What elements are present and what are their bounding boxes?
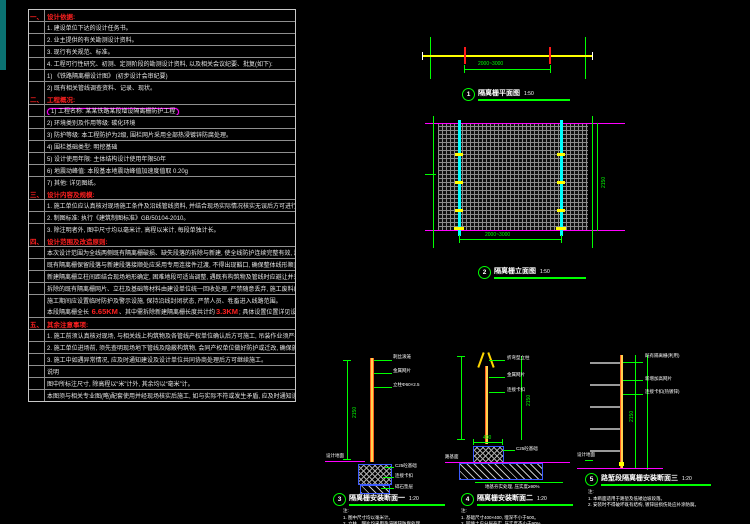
label-ground-treatment: 地基夯实处理, 压实度≥90% — [485, 484, 539, 489]
section-rows: 本次设计范围为全线两侧既有隔离栅破损、缺失段落的拆除与新建, 使全线防护连续完整… — [29, 247, 295, 306]
notes-row: 图中所标注尺寸, 除高程以“米”计外, 其余均以“毫米”计。 — [29, 378, 295, 390]
post-base — [454, 227, 464, 230]
extension-line — [647, 355, 648, 470]
notes-row: 施工期间应设置临时防护及警示设施, 保持沿线封闭状态, 严禁人员、牲畜进入线路范… — [29, 295, 295, 306]
notes-row: 4) 围栏基础类型: 明挖基础 — [29, 141, 295, 153]
section-rows: 1. 施工前须认真核对现场, 与相关线上构筑物及各管线产权单位确认后方可施工, … — [29, 330, 295, 401]
dim-post-height: 2150 — [629, 411, 635, 422]
rail — [590, 384, 620, 386]
rail — [590, 428, 620, 430]
label-existing-fence: 既有隔离栅(利用) — [645, 353, 707, 358]
label-new-mesh: 新增加高网片 — [645, 376, 707, 381]
plan-view: 2000~3000 — [420, 33, 602, 85]
drawing-title: 路堑段隔离栅安装断面三 — [601, 473, 678, 483]
post-section — [485, 366, 488, 444]
drawing-scale: 1:20 — [409, 496, 419, 502]
notes-row: 4. 工程可行性研究、初测、定测阶段的勘测设计资料, 以及相关会议纪要、批复(如… — [29, 58, 295, 70]
notes-row: 1) 《铁路隔离栅设计图》 (初步设计会审纪要) — [29, 70, 295, 82]
detail-number-badge: 5 — [585, 473, 598, 486]
section-title: 设计内容及规模: — [45, 189, 295, 199]
section-c-notes: 注:1. 本断面适用于路堑及低矮边坡段落。2. 安装时不得破坏既有结构, 镀锌层… — [588, 489, 713, 509]
fence-line-plan — [423, 55, 592, 57]
extension-line — [430, 37, 431, 79]
label-post-spec: 立柱Φ60×2.5 — [393, 382, 419, 387]
leader-line — [623, 380, 643, 381]
label-ground: 设计地面 — [326, 453, 344, 458]
drawing-title: 隔离栅平面图 — [478, 88, 520, 98]
notes-row: 3. 除注明者外, 图中尺寸均以毫米计, 高程以米计, 每段单独计长。 — [29, 224, 295, 235]
section-rows: 1. 建设单位下达的设计任务书。2. 业主提供的有关勘测设计资料。3. 现行有关… — [29, 22, 295, 93]
height-dimension-line — [521, 356, 522, 440]
ground-line — [425, 230, 625, 231]
ground-line — [577, 468, 663, 469]
post-arm — [477, 352, 484, 368]
leader-line — [623, 362, 643, 363]
cad-sheet: 一、 设计依据: 1. 建设单位下达的设计任务书。2. 业主提供的有关勘测设计资… — [0, 0, 750, 524]
fence-post — [458, 120, 461, 236]
sheet-edge-strip — [0, 0, 6, 70]
detail-number-badge: 3 — [333, 493, 346, 506]
notes-row: 1) 工程名称: 某某铁路某段增设隔离栅防护工程 — [29, 105, 295, 117]
height-dimension-line — [347, 360, 348, 460]
mid-tick — [425, 174, 436, 175]
label-clip: 连接卡扣 — [507, 387, 525, 392]
km-value-rebuild: 3.3KM — [215, 307, 239, 316]
notes-row: 5) 设计使用年限: 主体结构设计使用年限50年 — [29, 153, 295, 165]
label-subgrade: 路基面 — [445, 454, 459, 459]
leader-line — [489, 377, 505, 378]
notes-row: 2. 业主提供的有关勘测设计资料。 — [29, 34, 295, 46]
post-mark — [464, 47, 466, 64]
height-dimension-line — [635, 355, 636, 468]
section-header: 四、 设计范围及改造原则: — [29, 235, 295, 247]
ground-mark — [585, 460, 593, 461]
notes-row: 本次设计范围为全线两侧既有隔离栅破损、缺失段落的拆除与新建, 使全线防护连续完整… — [29, 247, 295, 259]
leader-line — [503, 450, 515, 451]
section-number: 五、 — [29, 318, 45, 329]
notes-row: 6) 地震动峰值: 本段基本地震动峰值加速度值取 0.20g — [29, 165, 295, 177]
concrete-foundation — [473, 446, 504, 463]
km-row-pre: 本段隔离栅全长 — [47, 310, 91, 316]
notes-row: 1. 建设单位下达的设计任务书。 — [29, 22, 295, 34]
leader-line — [374, 387, 392, 388]
section-a-notes: 注:1. 图中尺寸均以毫米计。2. 立柱、网片均采用热浸镀锌防腐处理。 — [343, 508, 443, 524]
km-value-total: 6.65KM — [91, 307, 119, 316]
label-ground: 设计地面 — [577, 452, 595, 457]
section-number: 二、 — [29, 93, 45, 104]
title-underline — [478, 99, 570, 101]
title-underline — [494, 277, 586, 279]
drawing-scale: 1:50 — [524, 91, 534, 97]
leader-line — [385, 467, 394, 468]
notes-row: 2) 环境类别及作用等级: 碳化环境 — [29, 117, 295, 129]
extension-line — [585, 37, 586, 79]
dim-tick — [343, 459, 351, 460]
fence-post — [560, 120, 563, 236]
install-section-2: 2150 折弯型立柱 金属网片 连接卡扣 400 路基面 C25砼基础 地基夯实… — [445, 350, 573, 524]
notes-row-km: 本段隔离栅全长 6.65KM、其中需拆除新建隔离栅长度共计约3.3KM; 具体设… — [29, 306, 295, 318]
label-clip: 连接卡扣(热镀锌) — [645, 389, 707, 394]
notes-row: 3. 现行有关规范、标准。 — [29, 46, 295, 58]
label-mesh: 金属网片 — [507, 372, 525, 377]
dim-tick — [457, 439, 465, 440]
section-title: 工程概况: — [45, 94, 295, 104]
section-title: 其余注意事项: — [45, 319, 295, 329]
label-bent-post: 折弯型立柱 — [507, 355, 530, 360]
notes-row: 1. 施工单位应认真核对现场施工条件及沿线管线资料, 并结合现场实际情况核实无误… — [29, 200, 295, 212]
section-number: 三、 — [29, 188, 45, 199]
section-title: 设计依据: — [45, 11, 295, 21]
post-clip — [455, 181, 463, 184]
post-mark — [549, 47, 551, 64]
notes-panel: 一、 设计依据: 1. 建设单位下达的设计任务书。2. 业主提供的有关勘测设计资… — [28, 9, 296, 402]
plan-title: 1 隔离栅平面图1:50 — [462, 88, 570, 101]
section-number: 四、 — [29, 235, 45, 246]
notes-row: 7) 其他: 详见图纸。 — [29, 177, 295, 188]
notes-row: 2. 施工单位进场前, 须先查明现场地下管线及隐蔽构筑物, 会同产权单位做好防护… — [29, 342, 295, 354]
label-mesh: 金属网片 — [393, 368, 411, 373]
section-b-notes: 注:1. 基础尺寸400×400, 埋深不小于500。2. 回填土应分层夯实, … — [461, 508, 571, 524]
drawing-title: 隔离栅安装断面一 — [349, 493, 405, 503]
detail-number-badge: 4 — [461, 493, 474, 506]
leader-line — [383, 477, 394, 478]
km-row-mid: 、其中需拆除新建隔离栅长度共计约 — [119, 310, 215, 316]
rail — [590, 362, 620, 364]
dim-tick — [459, 235, 460, 243]
extension-line — [433, 116, 434, 248]
section-number: 一、 — [29, 10, 45, 21]
drawing-scale: 1:20 — [682, 476, 692, 482]
post-clip — [557, 209, 565, 212]
detail-number-badge: 1 — [462, 88, 475, 101]
notes-row: 既有隔离栅保留段落与新建段落接顺处应采用专用连接件过渡, 不得出现豁口, 确保整… — [29, 259, 295, 271]
notes-row: 本图须与相关专业图(略)配套使用并经现场核实后施工, 如与实际不符或发生矛盾, … — [29, 390, 295, 401]
leader-line — [489, 392, 505, 393]
note-line: 2. 安装时不得破坏既有结构, 镀锌层损伤处应补涂防腐。 — [588, 502, 713, 509]
width-dimension-line — [473, 442, 503, 443]
elevation-view: 2000~3000 2150 — [425, 108, 630, 260]
post-base — [556, 227, 566, 230]
post-clip — [557, 153, 565, 156]
dim-post-height: 2150 — [526, 395, 532, 406]
notes-row: 2) 既有相关管线调查资料、记录、现状。 — [29, 82, 295, 93]
notes-row: 说明 — [29, 366, 295, 378]
height-dimension-line — [461, 356, 462, 440]
label-gravel: 碎石垫层 — [395, 484, 413, 489]
leader-line — [381, 488, 394, 489]
section-title: 设计范围及改造原则: — [45, 236, 295, 246]
section-header: 二、 工程概况: — [29, 93, 295, 105]
end-mark — [592, 52, 593, 60]
dim-tick — [502, 439, 503, 445]
leader-line — [374, 360, 392, 361]
section-a-title: 3 隔离栅安装断面一1:20 — [333, 493, 445, 506]
post-clip — [557, 181, 565, 184]
dim-foundation-width: 400 — [483, 435, 491, 441]
ground-slab — [459, 463, 543, 480]
leader-line — [623, 394, 643, 395]
dim-tick — [464, 65, 465, 73]
leader-line — [374, 373, 392, 374]
dim-fence-height: 2150 — [601, 177, 607, 188]
label-clip: 连接卡扣 — [395, 473, 413, 478]
dim-tick — [550, 65, 551, 73]
dim-tick — [473, 439, 474, 445]
dim-tick — [457, 356, 465, 357]
section-header: 五、 其余注意事项: — [29, 318, 295, 330]
title-underline — [349, 504, 445, 506]
title-underline — [601, 484, 711, 486]
post-clip — [455, 153, 463, 156]
section-c-title: 5 路堑段隔离栅安装断面三1:20 — [585, 473, 711, 486]
section-header: 一、 设计依据: — [29, 10, 295, 22]
install-section-3: 2150 既有隔离栅(利用) 新增加高网片 连接卡扣(热镀锌) 设计地面 5 路… — [575, 352, 715, 508]
post-clip — [455, 209, 463, 212]
dimension-line — [464, 69, 551, 70]
section-b-title: 4 隔离栅安装断面二1:20 — [461, 493, 573, 506]
notes-row: 3) 防护等级: 本工程防护为2级, 围栏网片采用全部热浸镀锌防腐处理。 — [29, 129, 295, 141]
end-mark — [422, 52, 423, 60]
rail — [590, 406, 620, 408]
dimension-line — [459, 239, 562, 240]
km-row-post: ; 具体设置位置详见设计平面图。 — [239, 310, 295, 316]
extension-line — [592, 116, 593, 248]
title-underline — [477, 504, 573, 506]
post-base — [619, 462, 624, 466]
notes-row: 拆除的既有隔离栅网片、立柱及基础等材料由建设单位统一回收处理, 严禁随意丢弃, … — [29, 283, 295, 295]
notes-row: 2. 制图标准: 执行《建筑制图标准》GB/50104-2010。 — [29, 212, 295, 224]
notes-row: 新建隔离栅立柱间距结合现场地形确定, 困难地段可适当调整, 遇既有构筑物及管线时… — [29, 271, 295, 283]
drawing-scale: 1:50 — [540, 269, 550, 275]
install-section-1: 2150 刺丝滚笼 金属网片 立柱Φ60×2.5 设计地面 C25砼基础 连接卡… — [325, 352, 445, 524]
drawing-scale: 1:20 — [537, 496, 547, 502]
dim-tick — [561, 235, 562, 243]
detail-number-badge: 2 — [478, 266, 491, 279]
label-barbed-coil: 刺丝滚笼 — [393, 354, 411, 359]
section-rows: 1) 工程名称: 某某铁路某段增设隔离栅防护工程2) 环境类别及作用等级: 碳化… — [29, 105, 295, 188]
section-rows: 1. 施工单位应认真核对现场施工条件及沿线管线资料, 并结合现场实际情况核实无误… — [29, 200, 295, 235]
dim-post-spacing: 2000~3000 — [485, 232, 510, 238]
dim-tick — [343, 360, 351, 361]
top-rail-line — [425, 123, 625, 124]
drawing-title: 隔离栅立面图 — [494, 266, 536, 276]
leader-line — [489, 360, 505, 361]
elevation-title: 2 隔离栅立面图1:50 — [478, 266, 586, 279]
label-foundation: C25砼基础 — [516, 446, 538, 451]
ground-line — [325, 461, 365, 462]
notes-row: 3. 施工中如遇异常情况, 应及时通知建设及设计单位共同协商处理后方可继续施工。 — [29, 354, 295, 366]
section-header: 三、 设计内容及规模: — [29, 188, 295, 200]
height-dimension-line — [597, 123, 598, 231]
drawing-title: 隔离栅安装断面二 — [477, 493, 533, 503]
notes-row: 1. 施工前须认真核对现场, 与相关线上构筑物及各管线产权单位确认后方可施工, … — [29, 330, 295, 342]
dim-post-height: 2150 — [352, 407, 358, 418]
post-section — [620, 355, 623, 468]
label-foundation: C25砼基础 — [395, 463, 417, 468]
leader-line — [475, 482, 563, 483]
dim-post-spacing: 2000~3000 — [478, 61, 503, 67]
